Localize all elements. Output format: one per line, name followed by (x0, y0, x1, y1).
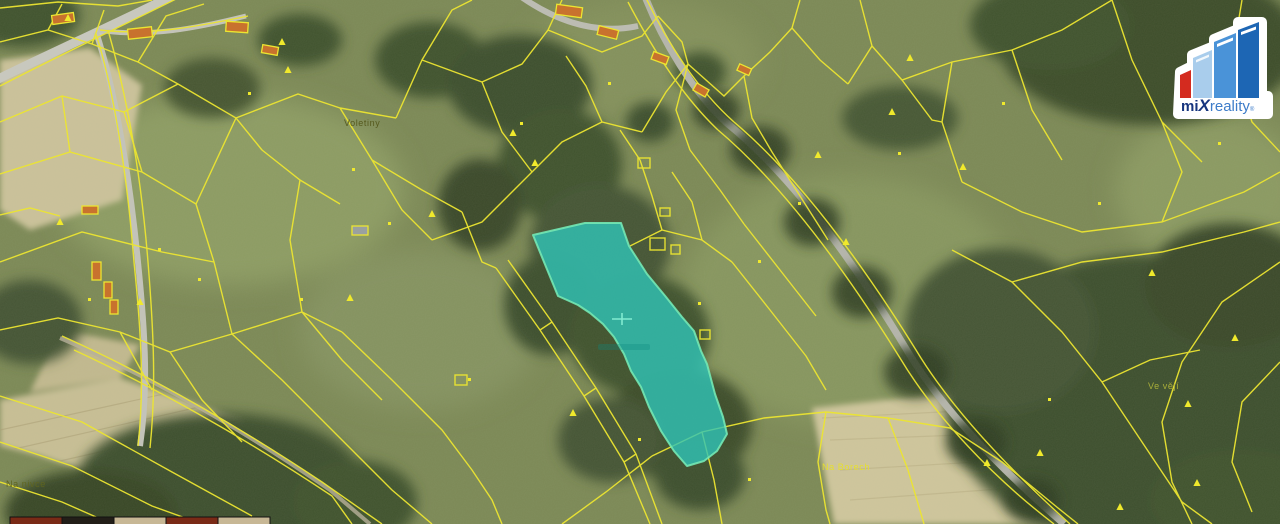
place-label-voletiny: Voletiny (344, 118, 380, 128)
place-label-ve-veji: Ve vějí (1148, 381, 1179, 391)
place-label-na-borech: Na Borech (822, 462, 870, 472)
map-scale-bar (10, 517, 270, 524)
place-label-na-nivce: Na nivce (6, 479, 46, 489)
cadastral-map-viewport: Voletiny Na Borech Ve vějí Na nivce miXr… (0, 0, 1280, 524)
parcel-annotation-smudge (598, 344, 650, 350)
logo-wordmark: miXreality® (1181, 96, 1255, 115)
